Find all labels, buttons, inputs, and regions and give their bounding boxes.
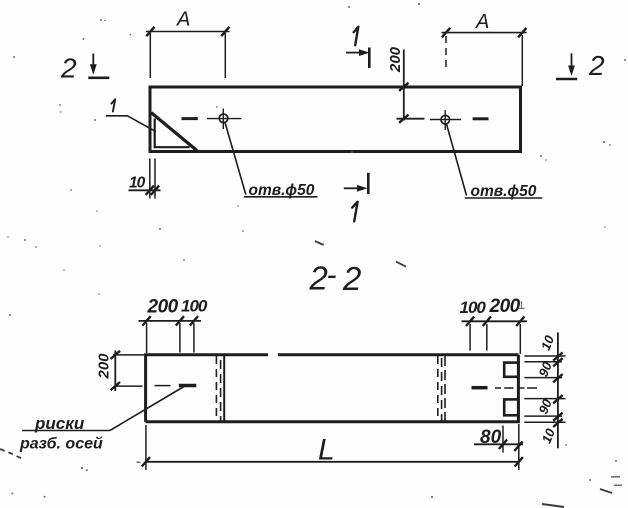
- svg-text:200: 200: [489, 296, 521, 317]
- svg-text:2: 2: [309, 260, 328, 297]
- svg-text:A: A: [176, 9, 190, 31]
- svg-text:отв.ϕ50: отв.ϕ50: [249, 182, 315, 199]
- svg-text:риски: риски: [34, 414, 85, 433]
- svg-text:10: 10: [129, 175, 146, 192]
- svg-text:80: 80: [480, 427, 502, 448]
- svg-text:2: 2: [342, 260, 361, 297]
- svg-text:200: 200: [387, 46, 404, 73]
- svg-text:2: 2: [60, 53, 77, 84]
- svg-text:200: 200: [96, 353, 113, 380]
- svg-text:-: -: [327, 259, 337, 292]
- svg-text:200: 200: [147, 297, 179, 318]
- svg-text:L: L: [318, 434, 335, 467]
- svg-text:100: 100: [460, 298, 487, 317]
- svg-text:A: A: [475, 11, 489, 33]
- svg-text:отв.ϕ50: отв.ϕ50: [471, 183, 537, 200]
- svg-text:2: 2: [588, 50, 605, 81]
- svg-text:100: 100: [181, 297, 208, 316]
- svg-text:разб. осей: разб. осей: [19, 436, 103, 453]
